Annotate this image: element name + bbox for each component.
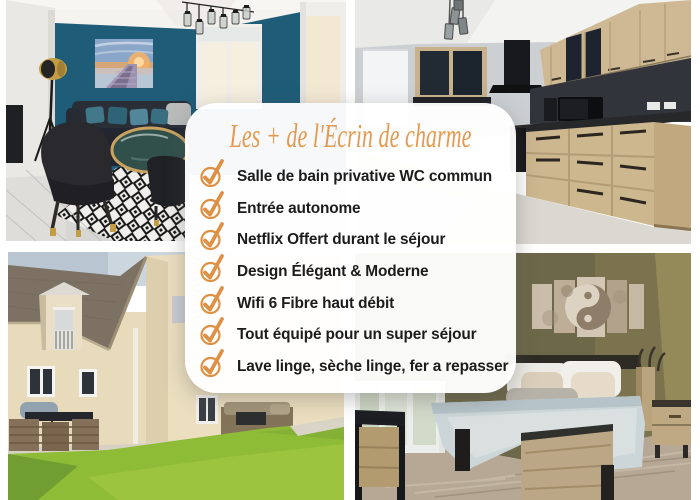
svg-text:Les + de l'Écrin de charme: Les + de l'Écrin de charme [229, 118, 472, 155]
